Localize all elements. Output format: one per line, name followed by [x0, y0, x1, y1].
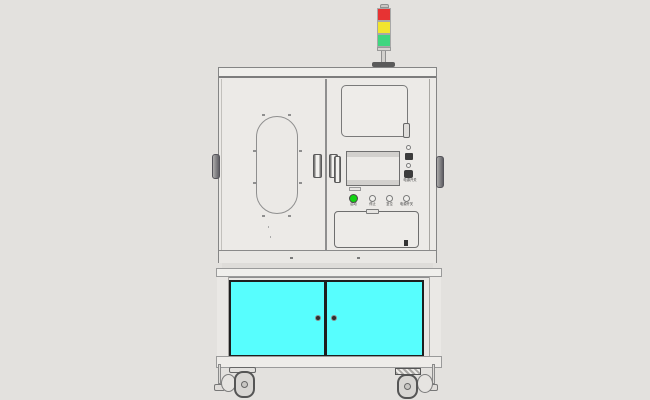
left-caster-hub — [241, 381, 248, 388]
right-caster-swivel-ring — [417, 374, 433, 393]
machine-cad-render: 电源开关 启动 停止 复位 电源开关 — [0, 0, 650, 400]
right-caster-hub — [404, 383, 411, 390]
casters — [0, 0, 650, 400]
